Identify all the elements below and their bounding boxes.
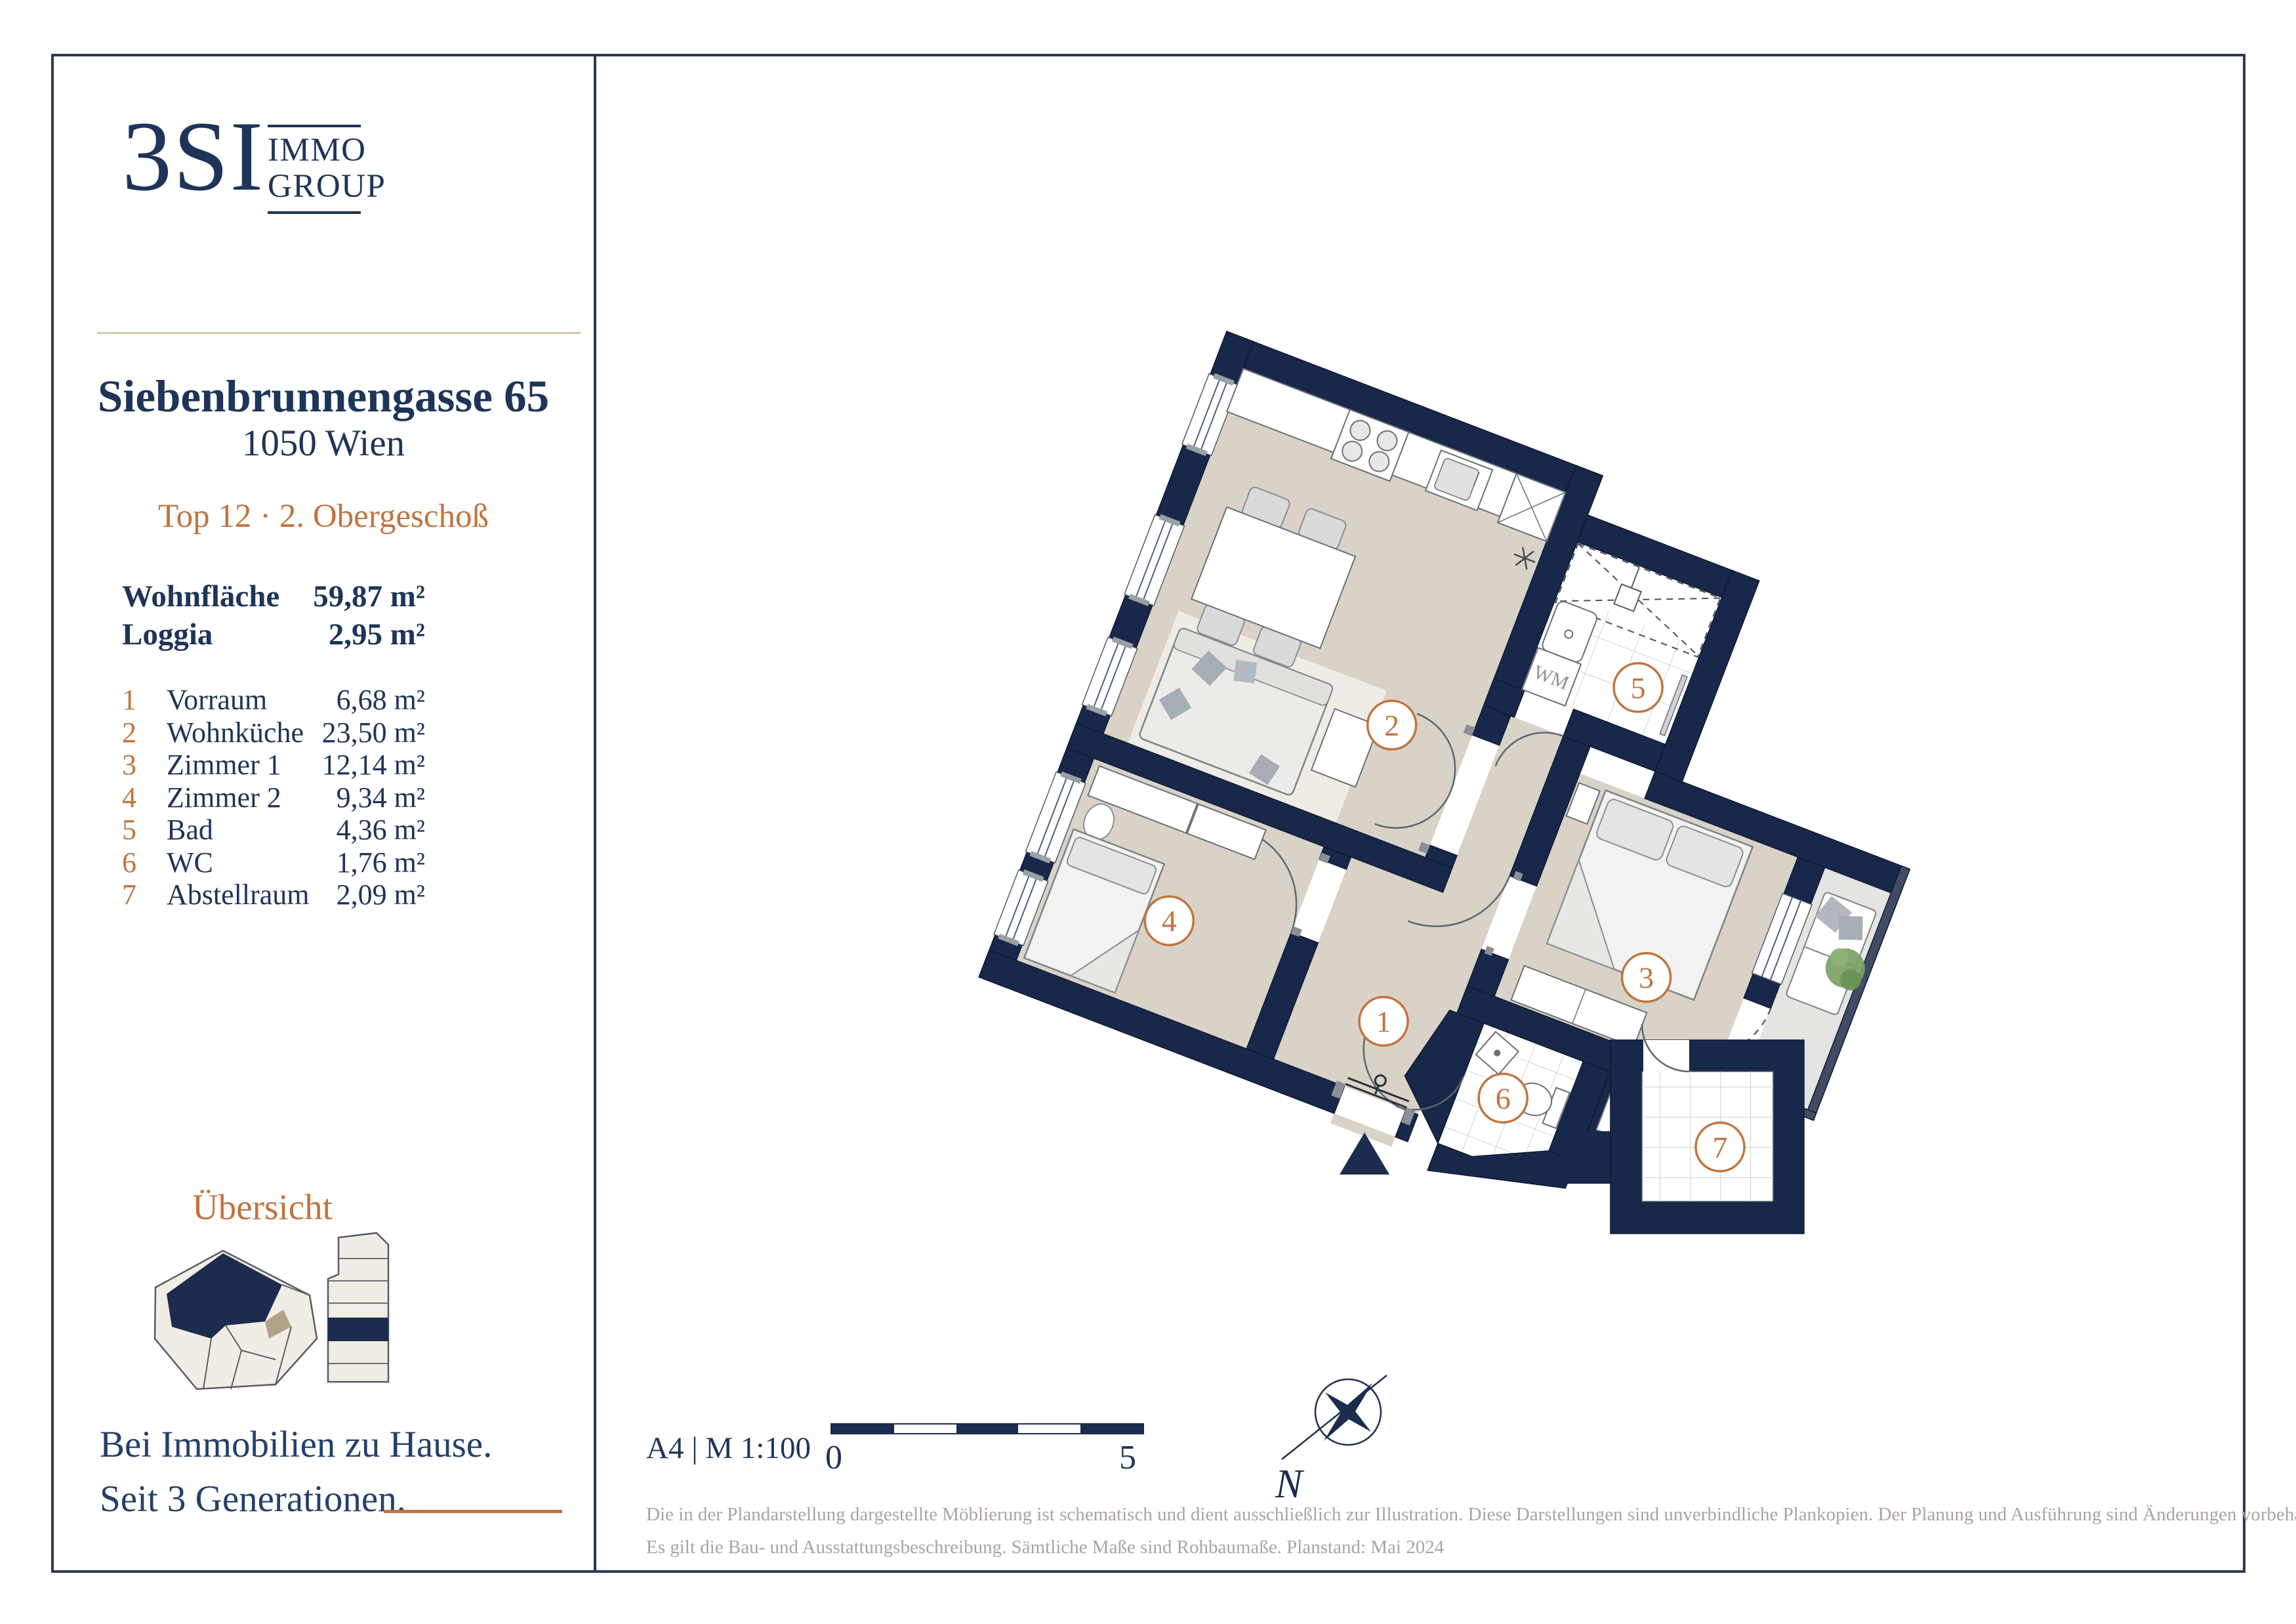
room-name: Zimmer 2	[167, 781, 337, 814]
tagline-rule	[384, 1510, 562, 1513]
disclaimer-line1: Die in der Plandarstellung dargestellte …	[646, 1504, 2296, 1526]
summary-value: 2,95 m²	[329, 615, 425, 654]
brand-logo-subtitle: IMMO GROUP	[268, 125, 361, 214]
page-title: Siebenbrunnengasse 65	[51, 371, 596, 422]
room-row: 6WC1,76 m²	[122, 846, 425, 879]
format-scale-label: A4 | M 1:100	[646, 1430, 811, 1466]
brand-logo-sub1: IMMO	[268, 133, 361, 169]
scale-end-label: 5	[1119, 1438, 1136, 1477]
room-area: 1,76 m²	[337, 846, 425, 879]
room-list: 1Vorraum6,68 m² 2Wohnküche23,50 m² 3Zimm…	[122, 684, 425, 911]
room-number: 7	[122, 879, 167, 911]
room-area: 9,34 m²	[337, 781, 425, 814]
room-area: 2,09 m²	[337, 879, 425, 911]
room-name: Abstellraum	[167, 879, 337, 911]
summary-row: Wohnfläche 59,87 m²	[122, 577, 425, 615]
room-row: 5Bad4,36 m²	[122, 814, 425, 846]
tagline-line2: Seit 3 Generationen.	[100, 1472, 492, 1526]
room-area: 23,50 m²	[322, 717, 425, 749]
room-name: Zimmer 1	[167, 749, 322, 781]
room-row: 1Vorraum6,68 m²	[122, 684, 425, 717]
sidebar-rule	[97, 332, 581, 334]
scale-bar	[830, 1423, 1144, 1434]
scale-segment	[894, 1425, 956, 1433]
room-area: 12,14 m²	[322, 749, 425, 781]
room-number: 1	[122, 684, 167, 717]
room-row: 2Wohnküche23,50 m²	[122, 717, 425, 749]
scale-segment	[1018, 1425, 1080, 1433]
room-name: Vorraum	[167, 684, 337, 717]
summary-value: 59,87 m²	[313, 577, 425, 615]
room-area: 6,68 m²	[337, 684, 425, 717]
room-number: 2	[122, 717, 167, 749]
scale-segment	[956, 1425, 1019, 1433]
area-summary: Wohnfläche 59,87 m² Loggia 2,95 m²	[122, 577, 425, 654]
room-name: Bad	[167, 814, 337, 846]
room-row: 7Abstellraum2,09 m²	[122, 879, 425, 911]
scale-segment	[832, 1425, 894, 1433]
room-area: 4,36 m²	[337, 814, 425, 846]
room-row: 3Zimmer 112,14 m²	[122, 749, 425, 781]
room-number: 5	[122, 814, 167, 846]
city-line: 1050 Wien	[51, 422, 596, 465]
room-number: 3	[122, 749, 167, 781]
brand-logo-sub2: GROUP	[268, 169, 361, 205]
brand-logo: 3SI	[122, 106, 264, 206]
room-name: Wohnküche	[167, 717, 322, 749]
address-block: Siebenbrunnengasse 65 1050 Wien	[51, 371, 596, 465]
room-number: 6	[122, 846, 167, 879]
summary-label: Wohnfläche	[122, 577, 279, 615]
tagline-line1: Bei Immobilien zu Hause.	[100, 1417, 492, 1472]
panel-divider	[594, 54, 596, 1570]
room-row: 4Zimmer 29,34 m²	[122, 781, 425, 814]
unit-line: Top 12 · 2. Obergeschoß	[51, 497, 596, 535]
summary-label: Loggia	[122, 615, 213, 654]
scale-start-label: 0	[825, 1438, 842, 1477]
summary-row: Loggia 2,95 m²	[122, 615, 425, 654]
overview-title: Übersicht	[72, 1186, 453, 1228]
room-number: 4	[122, 781, 167, 814]
scale-segment	[1080, 1425, 1143, 1433]
disclaimer-line2: Es gilt die Bau- und Ausstattungsbeschre…	[646, 1537, 1444, 1558]
room-name: WC	[167, 846, 337, 879]
